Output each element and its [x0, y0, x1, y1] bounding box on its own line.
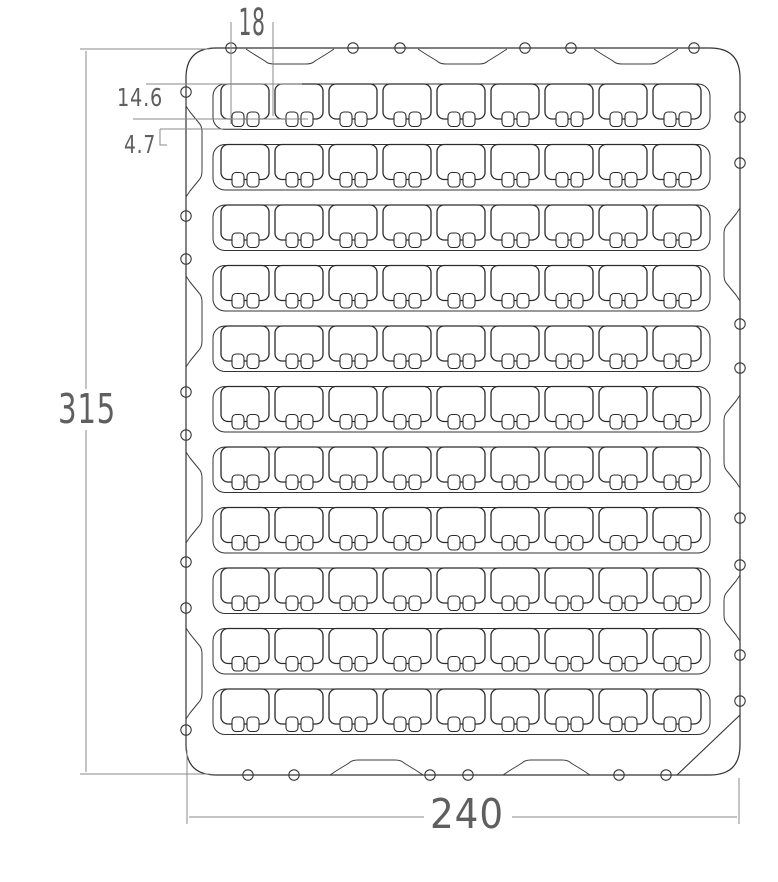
pocket — [221, 145, 269, 180]
pocket — [329, 629, 377, 664]
lead-notch — [502, 657, 514, 672]
lead-notch — [301, 596, 313, 611]
pocket — [275, 205, 323, 240]
pocket — [383, 326, 431, 361]
bottom-edge-recess — [503, 760, 590, 775]
lead-notch — [340, 173, 352, 188]
lead-notch — [502, 233, 514, 248]
pocket-row — [213, 568, 710, 614]
lead-notch — [664, 233, 676, 248]
lead-notch — [232, 475, 244, 490]
lead-notch — [664, 596, 676, 611]
lead-notch — [301, 173, 313, 188]
pocket — [221, 266, 269, 301]
lead-notch — [394, 173, 406, 188]
lead-notch — [409, 112, 421, 127]
lead-notch — [679, 596, 691, 611]
pocket — [275, 568, 323, 603]
lead-notch — [394, 233, 406, 248]
lead-notch — [286, 415, 298, 430]
lead-notch — [502, 415, 514, 430]
pocket — [599, 145, 647, 180]
lead-notch — [556, 657, 568, 672]
lead-notch — [232, 536, 244, 551]
pocket — [653, 266, 701, 301]
lead-notch — [409, 294, 421, 309]
lead-notch — [301, 294, 313, 309]
lead-notch — [301, 657, 313, 672]
pocket — [329, 326, 377, 361]
pocket-row — [213, 689, 710, 735]
pocket — [545, 447, 593, 482]
lead-notch — [355, 596, 367, 611]
pocket — [599, 266, 647, 301]
lead-notch — [610, 354, 622, 369]
pocket — [221, 689, 269, 724]
pocket — [437, 508, 485, 543]
pocket — [383, 447, 431, 482]
lead-notch — [286, 294, 298, 309]
lead-notch — [448, 536, 460, 551]
pocket — [221, 205, 269, 240]
lead-notch — [463, 233, 475, 248]
lead-notch — [409, 354, 421, 369]
lead-notch — [409, 596, 421, 611]
lead-notch — [517, 415, 529, 430]
lead-notch — [571, 294, 583, 309]
lead-notch — [517, 173, 529, 188]
pocket-row — [213, 326, 710, 372]
lead-notch — [340, 112, 352, 127]
lead-notch — [301, 475, 313, 490]
lead-notch — [463, 354, 475, 369]
pocket — [437, 629, 485, 664]
lead-notch — [448, 233, 460, 248]
pocket — [383, 508, 431, 543]
pocket — [437, 84, 485, 119]
lead-notch — [625, 536, 637, 551]
lead-notch — [232, 294, 244, 309]
lead-notch — [463, 475, 475, 490]
pocket — [383, 145, 431, 180]
lead-notch — [571, 354, 583, 369]
lead-notch — [679, 173, 691, 188]
lead-notch — [502, 294, 514, 309]
pocket — [329, 508, 377, 543]
lead-notch — [556, 233, 568, 248]
pocket — [221, 387, 269, 422]
pocket — [221, 447, 269, 482]
pocket — [491, 145, 539, 180]
pocket-grid — [213, 84, 710, 735]
lead-notch — [463, 596, 475, 611]
lead-notch — [625, 354, 637, 369]
lead-notch — [517, 536, 529, 551]
lead-notch — [517, 112, 529, 127]
lead-notch — [247, 717, 259, 732]
pocket — [437, 205, 485, 240]
lead-notch — [448, 415, 460, 430]
lead-notch — [517, 233, 529, 248]
lead-notch — [247, 354, 259, 369]
lead-notch — [286, 717, 298, 732]
lead-notch — [394, 354, 406, 369]
pocket — [599, 326, 647, 361]
pocket — [491, 689, 539, 724]
pocket — [275, 629, 323, 664]
lead-notch — [517, 596, 529, 611]
pocket — [437, 689, 485, 724]
lead-notch — [286, 354, 298, 369]
pocket — [599, 447, 647, 482]
drawing-canvas: 315 240 18 14.6 4.7 — [0, 0, 778, 882]
lead-notch — [247, 233, 259, 248]
pocket — [275, 84, 323, 119]
lead-notch — [286, 173, 298, 188]
lead-notch — [502, 475, 514, 490]
pocket — [437, 387, 485, 422]
pocket — [275, 145, 323, 180]
lead-notch — [679, 657, 691, 672]
lead-notch — [463, 294, 475, 309]
lead-notch — [355, 415, 367, 430]
technical-drawing: 315 240 18 14.6 4.7 — [0, 0, 778, 882]
lead-notch — [679, 536, 691, 551]
lead-notch — [394, 596, 406, 611]
dim-bracket — [160, 129, 167, 145]
lead-notch — [232, 415, 244, 430]
pocket — [653, 84, 701, 119]
pocket — [653, 568, 701, 603]
lead-notch — [247, 294, 259, 309]
pocket — [599, 205, 647, 240]
pocket — [221, 629, 269, 664]
lead-notch — [502, 596, 514, 611]
pocket — [653, 145, 701, 180]
lead-notch — [556, 354, 568, 369]
bottom-edge-recess — [330, 760, 423, 775]
lead-notch — [610, 717, 622, 732]
lead-notch — [679, 415, 691, 430]
lead-notch — [571, 112, 583, 127]
lead-notch — [571, 657, 583, 672]
top-edge-recess — [246, 49, 334, 64]
lead-notch — [409, 233, 421, 248]
lead-notch — [556, 717, 568, 732]
lead-notch — [463, 415, 475, 430]
lead-notch — [355, 294, 367, 309]
lead-notch — [301, 415, 313, 430]
right-edge-recess — [724, 395, 740, 488]
pocket — [329, 145, 377, 180]
lead-notch — [394, 717, 406, 732]
pocket — [221, 508, 269, 543]
pocket — [599, 568, 647, 603]
lead-notch — [502, 536, 514, 551]
lead-notch — [448, 112, 460, 127]
pocket — [653, 205, 701, 240]
lead-notch — [340, 415, 352, 430]
lead-notch — [409, 657, 421, 672]
pocket — [383, 84, 431, 119]
pocket-row — [213, 266, 710, 312]
lead-notch — [448, 294, 460, 309]
lead-notch — [340, 233, 352, 248]
lead-notch — [355, 717, 367, 732]
lead-notch — [355, 112, 367, 127]
pocket — [383, 568, 431, 603]
pocket — [653, 629, 701, 664]
lead-notch — [301, 717, 313, 732]
pocket — [383, 266, 431, 301]
lead-notch — [355, 233, 367, 248]
right-edge-recess — [724, 575, 740, 641]
pocket — [653, 689, 701, 724]
lead-notch — [232, 657, 244, 672]
lead-notch — [448, 717, 460, 732]
lead-notch — [286, 475, 298, 490]
lead-notch — [463, 657, 475, 672]
top-edge-recess — [418, 49, 507, 64]
lead-notch — [556, 112, 568, 127]
pocket — [545, 84, 593, 119]
pocket — [329, 387, 377, 422]
pocket-row — [213, 447, 710, 493]
lead-notch — [301, 536, 313, 551]
lead-notch — [664, 173, 676, 188]
pocket — [653, 447, 701, 482]
pocket — [599, 387, 647, 422]
pocket — [545, 266, 593, 301]
lead-notch — [463, 536, 475, 551]
pocket — [545, 326, 593, 361]
lead-notch — [679, 233, 691, 248]
lead-notch — [625, 717, 637, 732]
pocket-row — [213, 145, 710, 191]
lead-notch — [517, 657, 529, 672]
lead-notch — [517, 354, 529, 369]
lead-notch — [301, 354, 313, 369]
lead-notch — [556, 173, 568, 188]
lead-notch — [355, 657, 367, 672]
lead-notch — [571, 415, 583, 430]
pocket — [545, 508, 593, 543]
pocket — [275, 387, 323, 422]
lead-notch — [571, 596, 583, 611]
lead-notch — [232, 717, 244, 732]
lead-notch — [355, 475, 367, 490]
lead-notch — [610, 657, 622, 672]
lead-notch — [463, 112, 475, 127]
lead-notch — [625, 415, 637, 430]
lead-notch — [232, 354, 244, 369]
lead-notch — [571, 475, 583, 490]
lead-notch — [247, 173, 259, 188]
lead-notch — [664, 354, 676, 369]
lead-notch — [394, 475, 406, 490]
lead-notch — [448, 657, 460, 672]
lead-notch — [463, 173, 475, 188]
lead-notch — [394, 294, 406, 309]
lead-notch — [517, 717, 529, 732]
lead-notch — [610, 233, 622, 248]
pocket — [437, 145, 485, 180]
lead-notch — [610, 112, 622, 127]
dim-label-14-6: 14.6 — [117, 83, 163, 112]
left-edge-recess — [186, 628, 202, 719]
lead-notch — [679, 475, 691, 490]
lead-notch — [355, 173, 367, 188]
pocket — [437, 568, 485, 603]
left-edge-recess — [186, 452, 202, 543]
lead-notch — [340, 536, 352, 551]
left-edge-recess — [186, 276, 202, 367]
pocket — [383, 689, 431, 724]
pocket-row — [213, 84, 710, 130]
lead-notch — [355, 354, 367, 369]
lead-notch — [463, 717, 475, 732]
pocket — [545, 689, 593, 724]
lead-notch — [286, 657, 298, 672]
lead-notch — [664, 717, 676, 732]
pocket — [599, 629, 647, 664]
pocket — [437, 266, 485, 301]
pocket — [275, 447, 323, 482]
pocket — [329, 266, 377, 301]
lead-notch — [625, 596, 637, 611]
lead-notch — [247, 475, 259, 490]
lead-notch — [625, 657, 637, 672]
lead-notch — [556, 415, 568, 430]
dim-label-4-7: 4.7 — [124, 130, 156, 159]
pocket — [545, 629, 593, 664]
right-edge-recess — [724, 208, 740, 301]
lead-notch — [610, 536, 622, 551]
lead-notch — [517, 294, 529, 309]
pocket — [329, 84, 377, 119]
lead-notch — [340, 657, 352, 672]
pocket — [491, 387, 539, 422]
lead-notch — [610, 596, 622, 611]
lead-notch — [409, 717, 421, 732]
lead-notch — [448, 354, 460, 369]
pocket — [221, 568, 269, 603]
lead-notch — [556, 294, 568, 309]
lead-notch — [502, 354, 514, 369]
pocket — [653, 326, 701, 361]
lead-notch — [664, 536, 676, 551]
pocket — [599, 84, 647, 119]
lead-notch — [625, 173, 637, 188]
pocket — [599, 689, 647, 724]
lead-notch — [247, 536, 259, 551]
lead-notch — [679, 294, 691, 309]
pocket — [491, 84, 539, 119]
lead-notch — [448, 596, 460, 611]
lead-notch — [556, 475, 568, 490]
lead-notch — [517, 475, 529, 490]
lead-notch — [664, 294, 676, 309]
lead-notch — [340, 596, 352, 611]
lead-notch — [448, 173, 460, 188]
pocket-row — [213, 205, 710, 251]
lead-notch — [232, 596, 244, 611]
lead-notch — [664, 657, 676, 672]
lead-notch — [394, 112, 406, 127]
pocket — [545, 387, 593, 422]
lead-notch — [232, 233, 244, 248]
pocket — [329, 205, 377, 240]
lead-notch — [664, 415, 676, 430]
lead-notch — [409, 536, 421, 551]
dimension-overall-width: 240 — [187, 750, 739, 838]
pocket — [275, 689, 323, 724]
dim-label-315: 315 — [58, 385, 116, 433]
lead-notch — [610, 475, 622, 490]
lead-notch — [409, 415, 421, 430]
pocket — [491, 266, 539, 301]
lead-notch — [664, 112, 676, 127]
pocket — [491, 629, 539, 664]
pocket — [383, 387, 431, 422]
pocket-row — [213, 629, 710, 675]
pocket — [491, 205, 539, 240]
lead-notch — [502, 717, 514, 732]
pocket — [329, 689, 377, 724]
lead-notch — [679, 112, 691, 127]
pocket — [653, 508, 701, 543]
lead-notch — [247, 657, 259, 672]
lead-notch — [340, 294, 352, 309]
lead-notch — [286, 536, 298, 551]
lead-notch — [301, 233, 313, 248]
top-edge-recess — [594, 49, 678, 64]
pocket — [437, 326, 485, 361]
pocket — [545, 205, 593, 240]
pocket — [329, 447, 377, 482]
pocket — [545, 145, 593, 180]
pocket — [491, 508, 539, 543]
pocket — [545, 568, 593, 603]
lead-notch — [340, 475, 352, 490]
lead-notch — [679, 354, 691, 369]
lead-notch — [625, 233, 637, 248]
dim-label-18: 18 — [239, 1, 266, 44]
lead-notch — [502, 173, 514, 188]
lead-notch — [247, 415, 259, 430]
lead-notch — [448, 475, 460, 490]
lead-notch — [556, 596, 568, 611]
lead-notch — [340, 717, 352, 732]
lead-notch — [625, 475, 637, 490]
lead-notch — [247, 596, 259, 611]
left-edge-recess — [186, 106, 202, 197]
pocket — [491, 568, 539, 603]
pocket-row — [213, 508, 710, 554]
lead-notch — [625, 112, 637, 127]
lead-notch — [286, 233, 298, 248]
pocket — [383, 629, 431, 664]
lead-notch — [610, 415, 622, 430]
pocket — [383, 205, 431, 240]
pocket — [653, 387, 701, 422]
lead-notch — [502, 112, 514, 127]
pocket — [599, 508, 647, 543]
pocket — [221, 326, 269, 361]
lead-notch — [286, 596, 298, 611]
lead-notch — [610, 294, 622, 309]
lead-notch — [409, 475, 421, 490]
